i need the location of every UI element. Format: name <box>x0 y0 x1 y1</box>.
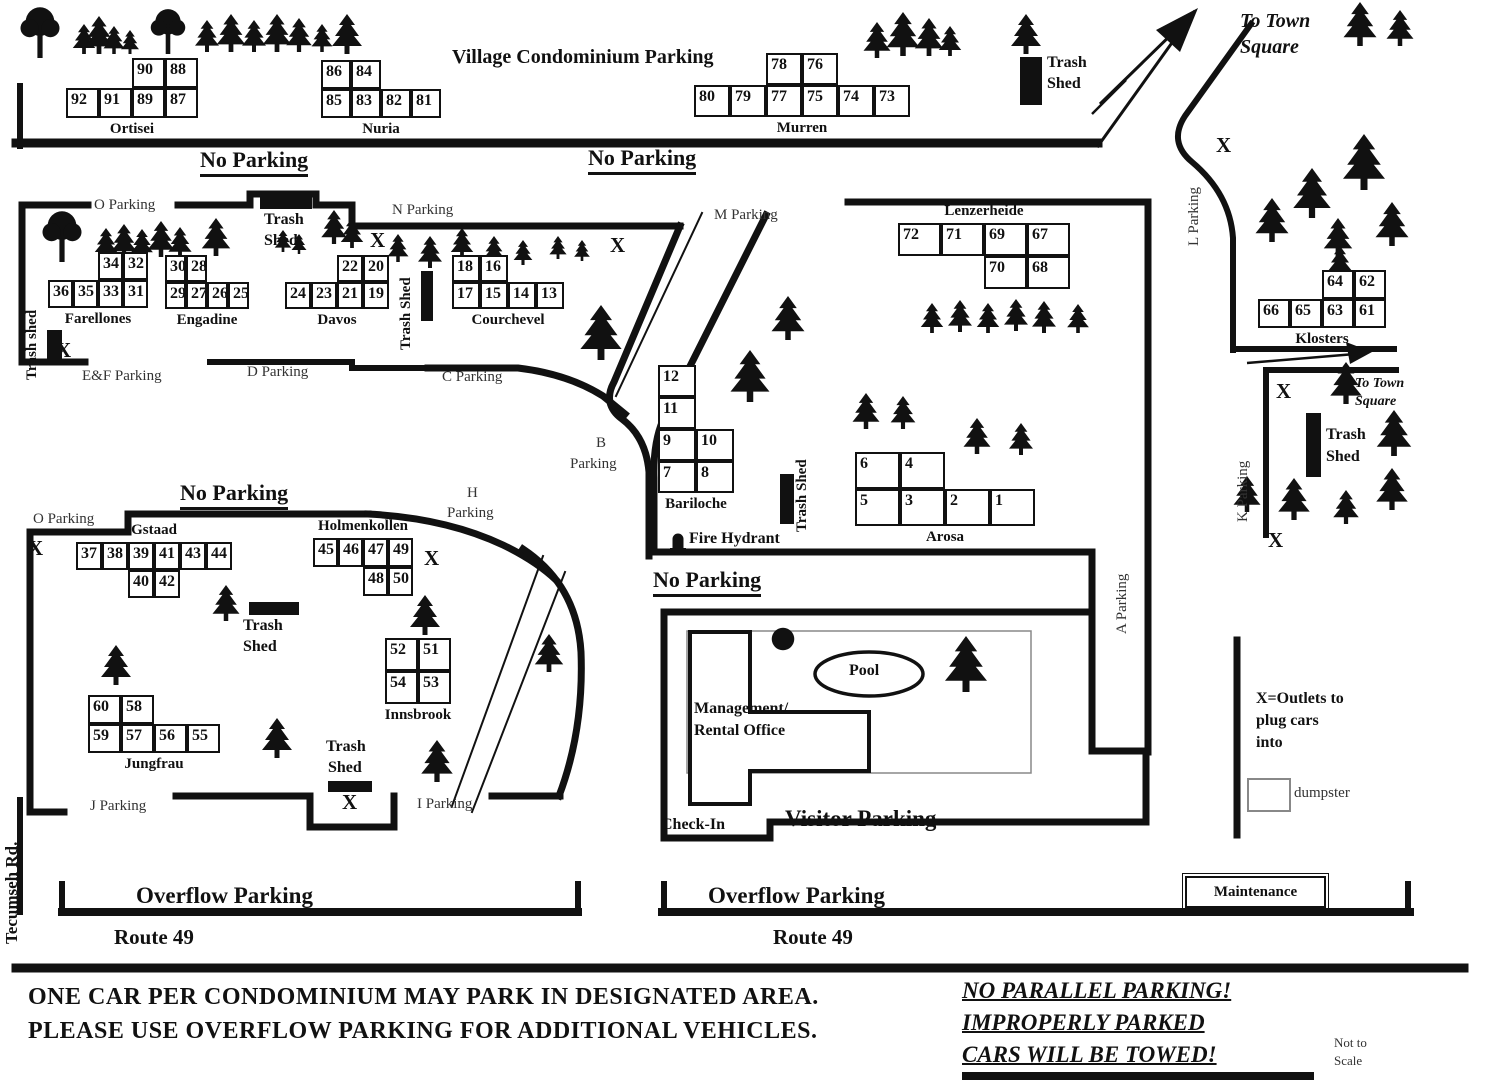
parking-space-81: 81 <box>411 89 441 118</box>
parking-space-60: 60 <box>88 695 121 724</box>
parking-space-45: 45 <box>313 538 338 567</box>
pine-tree-icon <box>1387 10 1414 46</box>
parking-space-27: 27 <box>186 282 207 309</box>
parking-space-29: 29 <box>165 282 186 309</box>
parking-space-41: 41 <box>154 542 180 570</box>
pine-tree-icon <box>418 236 442 268</box>
parking-space-48: 48 <box>363 567 388 596</box>
vertical-label-trash-shed: Trash Shed <box>398 277 415 350</box>
building-label-innsbrook: Innsbrook <box>385 707 451 724</box>
parking-space-10: 10 <box>696 429 734 461</box>
label-please-use-overflow-parking-for-additional-vehicles: PLEASE USE OVERFLOW PARKING FOR ADDITION… <box>28 1018 818 1045</box>
klosters-arrow-shaft <box>1247 354 1355 363</box>
parking-space-22: 22 <box>337 255 363 282</box>
pine-tree-icon <box>891 396 916 429</box>
trash-shed-rect <box>780 474 794 524</box>
label-shed: Shed <box>243 638 277 656</box>
parking-space-47: 47 <box>363 538 388 567</box>
parking-space-84: 84 <box>351 60 381 89</box>
vertical-label-tecumseh-rd: Tecumseh Rd. <box>2 842 22 944</box>
label-village-condominium-parking: Village Condominium Parking <box>452 46 714 69</box>
visitor-lot <box>1092 612 1146 820</box>
parking-space-20: 20 <box>363 255 389 282</box>
pine-tree-icon <box>410 595 440 635</box>
label-parking: Parking <box>570 456 617 473</box>
pine-tree-icon <box>977 303 1000 333</box>
building-label-arosa: Arosa <box>926 529 964 546</box>
parking-space-58: 58 <box>121 695 154 724</box>
parking-space-53: 53 <box>418 671 451 704</box>
parking-space-88: 88 <box>165 58 198 88</box>
pine-tree-icon <box>1032 301 1056 333</box>
outlet-x-mark: X <box>1276 379 1291 404</box>
trash-shed-rect <box>260 196 312 209</box>
parking-space-77: 77 <box>766 85 802 117</box>
parking-space-75: 75 <box>802 85 838 117</box>
i-road-line <box>472 572 565 812</box>
pine-tree-icon <box>1256 198 1289 242</box>
parking-space-52: 52 <box>385 638 418 671</box>
building-label-ortisei: Ortisei <box>110 121 154 138</box>
vertical-label-a-parking: A Parking <box>1114 574 1131 634</box>
vertical-label-l-parking: L Parking <box>1186 187 1203 246</box>
parking-space-49: 49 <box>388 538 413 567</box>
pine-tree-icon <box>202 218 231 256</box>
pine-tree-icon <box>262 718 292 758</box>
parking-space-91: 91 <box>99 88 132 118</box>
parking-space-31: 31 <box>123 280 148 308</box>
parking-space-25: 25 <box>228 282 249 309</box>
label-shed: Shed <box>1047 75 1081 93</box>
pine-tree-icon <box>549 236 566 259</box>
pine-tree-icon <box>451 228 474 258</box>
parking-space-15: 15 <box>480 282 508 309</box>
label-x-outlets-to: X=Outlets to <box>1256 690 1344 708</box>
label-management: Management/ <box>694 700 788 718</box>
maintenance-box: Maintenance <box>1185 876 1326 908</box>
label-shed: Shed <box>1326 448 1360 466</box>
outlet-x-mark: X <box>1216 133 1231 158</box>
label-c-parking: C Parking <box>442 369 502 386</box>
outlet-x-mark: X <box>424 546 439 571</box>
label-parking: Parking <box>447 505 494 522</box>
label-check-in: Check-In <box>661 816 725 834</box>
parking-space-3: 3 <box>900 489 945 526</box>
label-trash: Trash <box>326 738 366 756</box>
parking-space-30: 30 <box>165 255 186 282</box>
parking-space-34: 34 <box>98 252 123 280</box>
pine-tree-icon <box>864 22 891 58</box>
parking-space-87: 87 <box>165 88 198 118</box>
label-overflow-parking: Overflow Parking <box>708 883 885 909</box>
parking-space-83: 83 <box>351 89 381 118</box>
parking-space-14: 14 <box>508 282 536 309</box>
parking-space-68: 68 <box>1027 256 1070 289</box>
label-trash: Trash <box>264 211 304 229</box>
label-no-parking: No Parking <box>180 480 288 510</box>
label-to-town: To Town <box>1355 376 1404 392</box>
trash-shed-rect <box>1020 57 1042 105</box>
label-m-parking: M Parking <box>714 207 778 224</box>
pine-tree-icon <box>421 740 453 782</box>
pine-tree-icon <box>921 303 944 333</box>
parking-space-46: 46 <box>338 538 363 567</box>
parking-space-13: 13 <box>536 282 564 309</box>
round-tree-icon <box>151 9 186 54</box>
town-square-arrow-chevron <box>1092 80 1126 114</box>
pine-tree-icon <box>1343 134 1385 190</box>
label-trash: Trash <box>243 617 283 635</box>
pine-tree-icon <box>321 210 347 244</box>
parking-space-2: 2 <box>945 489 990 526</box>
label-shed: Shed <box>328 759 362 777</box>
label-e-f-parking: E&F Parking <box>82 368 162 385</box>
town-square-arrow-head <box>1156 8 1198 52</box>
trash-shed-rect <box>249 602 299 615</box>
label-trash: Trash <box>1047 54 1087 72</box>
label-no-parallel-parking: NO PARALLEL PARKING! <box>962 978 1231 1004</box>
parking-space-12: 12 <box>658 365 696 397</box>
label-square: Square <box>1240 36 1299 59</box>
parking-space-36: 36 <box>48 280 73 308</box>
klosters-arrow-head <box>1346 342 1372 364</box>
pine-tree-icon <box>948 300 972 332</box>
parking-space-43: 43 <box>180 542 206 570</box>
parking-space-5: 5 <box>855 489 900 526</box>
label-pool: Pool <box>849 662 879 680</box>
outlet-x-mark: X <box>610 233 625 258</box>
pine-tree-icon <box>168 227 191 258</box>
parking-space-74: 74 <box>838 85 874 117</box>
pine-tree-icon <box>915 18 944 56</box>
outlet-x-mark: X <box>28 536 43 561</box>
building-label-davos: Davos <box>317 312 356 329</box>
pine-tree-icon <box>964 418 991 454</box>
label-visitor-parking: Visitor Parking <box>785 806 936 832</box>
parking-space-85: 85 <box>321 89 351 118</box>
label-b: B <box>596 435 606 452</box>
parking-space-35: 35 <box>73 280 98 308</box>
pine-tree-icon <box>887 12 920 56</box>
maintenance-label: Maintenance <box>1214 884 1297 900</box>
round-tree-icon <box>43 211 82 262</box>
parking-space-8: 8 <box>696 461 734 493</box>
label-overflow-parking: Overflow Parking <box>136 883 313 909</box>
label-o-parking: O Parking <box>33 511 94 528</box>
parking-space-39: 39 <box>128 542 154 570</box>
label-j-parking: J Parking <box>90 798 146 815</box>
pine-tree-icon <box>1011 14 1041 54</box>
pine-tree-icon <box>853 393 880 429</box>
label-one-car-per-condominium-may-park-in-designated-area: ONE CAR PER CONDOMINIUM MAY PARK IN DESI… <box>28 984 819 1011</box>
pine-tree-icon <box>514 240 533 265</box>
building-label-engadine: Engadine <box>177 312 238 329</box>
pine-tree-icon <box>286 18 312 52</box>
label-route-49: Route 49 <box>773 925 853 950</box>
parking-space-55: 55 <box>187 724 220 753</box>
parking-space-4: 4 <box>900 452 945 489</box>
vertical-label-k-parking: K Parking <box>1235 461 1252 522</box>
pine-tree-icon <box>213 585 240 621</box>
label-to-town: To Town <box>1240 10 1310 33</box>
outlet-x-mark: X <box>370 228 385 253</box>
parking-space-18: 18 <box>452 255 480 282</box>
label-improperly-parked: IMPROPERLY PARKED <box>962 1010 1205 1036</box>
parking-space-56: 56 <box>154 724 187 753</box>
parking-space-54: 54 <box>385 671 418 704</box>
parking-space-28: 28 <box>186 255 207 282</box>
parking-space-11: 11 <box>658 397 696 429</box>
pine-tree-icon <box>772 296 805 340</box>
parking-space-40: 40 <box>128 570 154 598</box>
vertical-label-trash-shed: Trash shed <box>24 310 41 380</box>
bottom-right-bar <box>962 1072 1314 1080</box>
parking-space-33: 33 <box>98 280 123 308</box>
building-label-gstaad: Gstaad <box>131 522 177 539</box>
parking-space-44: 44 <box>206 542 232 570</box>
pine-tree-icon <box>1293 168 1331 218</box>
pine-tree-icon <box>1376 202 1409 246</box>
pine-tree-icon <box>1009 423 1033 455</box>
pine-tree-icon <box>1333 490 1359 524</box>
pine-tree-icon <box>574 240 590 261</box>
building-label-murren: Murren <box>777 120 828 137</box>
pine-tree-icon <box>332 14 362 54</box>
label-fire-hydrant: Fire Hydrant <box>689 530 780 548</box>
parking-space-69: 69 <box>984 223 1027 256</box>
bush-icon <box>772 628 795 651</box>
label-i-parking: I Parking <box>417 796 472 813</box>
pine-tree-icon <box>101 645 131 685</box>
dumpster-box <box>1247 778 1291 812</box>
pine-tree-icon <box>1004 299 1028 331</box>
building-label-courchevel: Courchevel <box>471 312 544 329</box>
pine-tree-icon <box>1278 478 1310 520</box>
parking-space-72: 72 <box>898 223 941 256</box>
pine-tree-icon <box>104 26 125 54</box>
parking-space-50: 50 <box>388 567 413 596</box>
label-o-parking: O Parking <box>94 197 155 214</box>
pine-tree-icon <box>1344 2 1377 46</box>
parking-space-82: 82 <box>381 89 411 118</box>
pine-tree-icon <box>945 636 987 692</box>
label-not-to: Not to <box>1334 1035 1367 1051</box>
label-route-49: Route 49 <box>114 925 194 950</box>
label-square: Square <box>1355 394 1396 410</box>
parking-space-73: 73 <box>874 85 910 117</box>
label-shed: Shed <box>264 232 298 250</box>
parking-space-57: 57 <box>121 724 154 753</box>
parking-space-76: 76 <box>802 53 838 85</box>
round-tree-icon <box>21 7 60 58</box>
parking-space-70: 70 <box>984 256 1027 289</box>
label-no-parking: No Parking <box>200 147 308 177</box>
lower-lot-bottom <box>176 796 394 827</box>
parking-space-42: 42 <box>154 570 180 598</box>
building-label-farellones: Farellones <box>65 311 131 328</box>
parking-space-61: 61 <box>1354 299 1386 328</box>
parking-space-92: 92 <box>66 88 99 118</box>
parking-space-78: 78 <box>766 53 802 85</box>
parking-space-66: 66 <box>1258 299 1290 328</box>
building-label-bariloche: Bariloche <box>665 496 727 513</box>
pine-tree-icon <box>195 20 219 52</box>
parking-space-24: 24 <box>285 282 311 309</box>
parking-space-79: 79 <box>730 85 766 117</box>
label-d-parking: D Parking <box>247 364 308 381</box>
parking-map: 908892918987Ortisei868485838281Nuria7876… <box>0 0 1487 1080</box>
parking-space-1: 1 <box>990 489 1035 526</box>
pine-tree-icon <box>1377 410 1412 456</box>
label-cars-will-be-towed: CARS WILL BE TOWED! <box>962 1042 1217 1068</box>
building-label-klosters: Klosters <box>1295 331 1348 348</box>
label-rental-office: Rental Office <box>694 722 785 740</box>
parking-space-23: 23 <box>311 282 337 309</box>
parking-space-89: 89 <box>132 88 165 118</box>
parking-space-67: 67 <box>1027 223 1070 256</box>
parking-space-59: 59 <box>88 724 121 753</box>
pine-tree-icon <box>121 30 139 54</box>
trash-shed-rect <box>1306 413 1321 477</box>
parking-space-64: 64 <box>1322 270 1354 299</box>
fire-hydrant-icon <box>670 534 686 554</box>
pine-tree-icon <box>1376 468 1408 510</box>
label-plug-cars: plug cars <box>1256 712 1319 730</box>
parking-space-9: 9 <box>658 429 696 461</box>
label-scale: Scale <box>1334 1053 1362 1069</box>
label-h: H <box>467 485 478 502</box>
parking-space-26: 26 <box>207 282 228 309</box>
outlet-x-mark: X <box>342 790 357 815</box>
parking-space-38: 38 <box>102 542 128 570</box>
parking-space-71: 71 <box>941 223 984 256</box>
parking-space-32: 32 <box>123 252 148 280</box>
parking-space-62: 62 <box>1354 270 1386 299</box>
pine-tree-icon <box>388 234 409 262</box>
pine-tree-icon <box>731 350 770 402</box>
label-no-parking: No Parking <box>653 567 761 597</box>
parking-space-21: 21 <box>337 282 363 309</box>
pine-tree-icon <box>312 24 333 52</box>
parking-space-65: 65 <box>1290 299 1322 328</box>
parking-space-51: 51 <box>418 638 451 671</box>
label-no-parking: No Parking <box>588 145 696 175</box>
parking-space-86: 86 <box>321 60 351 89</box>
trash-shed-rect <box>328 781 372 792</box>
label-into: into <box>1256 734 1283 752</box>
pine-tree-icon <box>217 14 246 52</box>
label-n-parking: N Parking <box>392 202 453 219</box>
building-label-nuria: Nuria <box>362 121 400 138</box>
building-label-lenzerheide: Lenzerheide <box>944 203 1023 220</box>
label-trash: Trash <box>1326 426 1366 444</box>
parking-space-63: 63 <box>1322 299 1354 328</box>
vertical-label-trash-shed: Trash Shed <box>794 459 811 532</box>
building-label-jungfrau: Jungfrau <box>124 756 183 773</box>
i-road-line <box>452 556 543 806</box>
pine-tree-icon <box>1067 304 1089 333</box>
parking-space-6: 6 <box>855 452 900 489</box>
dumpster-label: dumpster <box>1294 785 1350 802</box>
left-lot-bottom <box>210 362 428 368</box>
trash-shed-rect <box>47 330 62 363</box>
pine-tree-icon <box>242 20 266 52</box>
parking-space-37: 37 <box>76 542 102 570</box>
outlet-x-mark: X <box>1268 528 1283 553</box>
parking-space-17: 17 <box>452 282 480 309</box>
building-label-holmenkollen: Holmenkollen <box>318 518 408 535</box>
pine-tree-icon <box>580 305 621 360</box>
parking-space-16: 16 <box>480 255 508 282</box>
pine-tree-icon <box>939 26 962 56</box>
parking-space-19: 19 <box>363 282 389 309</box>
pine-tree-icon <box>263 14 292 52</box>
parking-space-90: 90 <box>132 58 165 88</box>
trash-shed-rect <box>421 271 433 321</box>
parking-space-80: 80 <box>694 85 730 117</box>
parking-space-7: 7 <box>658 461 696 493</box>
